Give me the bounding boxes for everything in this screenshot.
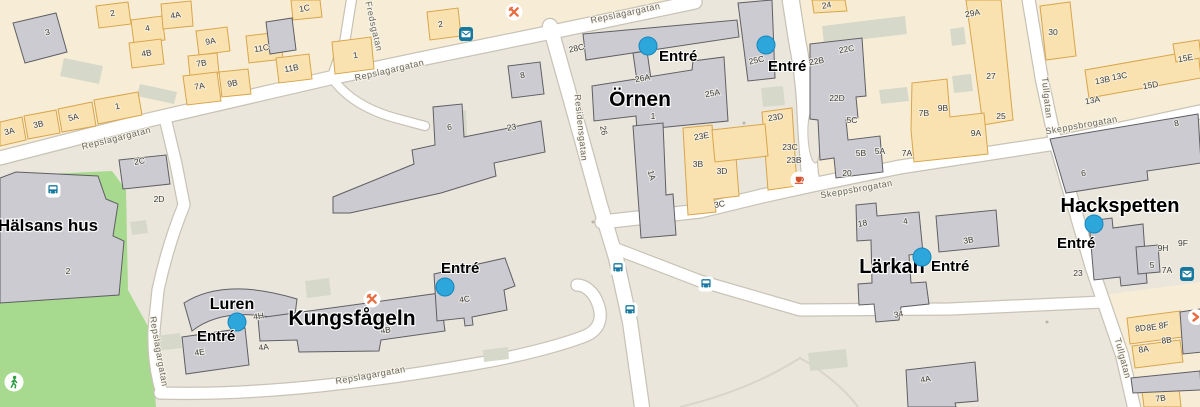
map-canvas[interactable]: RepslagargatanRepslagargatanRepslagargat…	[0, 0, 1200, 407]
building-number: 25	[996, 111, 1006, 121]
building-number: 3B	[693, 159, 704, 169]
building-number: 7A	[902, 148, 913, 158]
building-number: 2D	[154, 194, 165, 204]
building-number: 9H	[1158, 243, 1169, 253]
entrance-dot-icon[interactable]	[1085, 215, 1103, 233]
bus-stop-icon[interactable]	[611, 261, 626, 276]
building-number: 8D	[1135, 322, 1147, 333]
entrance-label: Entré	[1057, 235, 1095, 252]
building-number: 1	[651, 111, 656, 121]
building-number: 4A	[169, 9, 181, 21]
building-number: 8F	[1158, 319, 1169, 330]
restaurant-icon[interactable]	[364, 291, 381, 308]
building-number: 3D	[717, 166, 728, 176]
building-number: 4H	[253, 310, 265, 321]
building-number: 24	[821, 0, 832, 11]
building-number: 23C	[782, 142, 798, 152]
restaurant-icon[interactable]	[506, 4, 523, 21]
building-number: 9A	[971, 128, 982, 138]
mail-icon[interactable]	[1180, 267, 1194, 281]
building-number: 7A	[1162, 265, 1173, 275]
building-number: 7B	[195, 57, 207, 69]
building-number: 4A	[919, 373, 931, 385]
building-number: 1C	[298, 2, 310, 14]
entrance-label: Entré	[768, 58, 806, 75]
bus-stop-icon[interactable]	[699, 277, 714, 292]
building-number: 7B	[1155, 392, 1167, 403]
entrance-dot-icon[interactable]	[757, 36, 775, 54]
building-number: 3B	[962, 234, 974, 246]
building-number: 9B	[226, 77, 238, 89]
quarter-label: Hackspetten	[1061, 195, 1180, 217]
building-number: 5B	[856, 148, 867, 158]
building-number: 5C	[847, 115, 858, 125]
building-number: 23	[1073, 268, 1083, 278]
entrance-dot-icon[interactable]	[436, 278, 454, 296]
building-number: 27	[986, 71, 996, 81]
building-number: 22D	[829, 93, 845, 103]
building-number: 34	[893, 308, 904, 320]
building-number: 4A	[258, 341, 270, 352]
building-number: 9F	[1178, 238, 1188, 248]
quarter-label: Örnen	[609, 88, 671, 111]
building-number: 4E	[194, 346, 206, 357]
quarter-label: Kungsfågeln	[288, 307, 415, 330]
building-number: 23B	[786, 155, 801, 165]
entrance-dot-icon[interactable]	[639, 37, 657, 55]
building-number: 7A	[193, 80, 205, 92]
quarter-label: Hälsans hus	[0, 216, 98, 235]
building-number: 7B	[919, 108, 930, 118]
building-number: 18	[857, 217, 868, 229]
building-number: 5A	[875, 146, 886, 156]
entrance-label: Entré	[441, 260, 479, 277]
building-number: 8B	[1161, 334, 1173, 345]
building-number: 3C	[713, 198, 725, 210]
building-number: 30	[1048, 27, 1058, 37]
building-number: 5	[1150, 260, 1155, 270]
entrance-label: Entré	[931, 258, 969, 275]
entrance-dot-icon[interactable]	[913, 248, 931, 266]
entrance-label: Entré	[197, 328, 235, 345]
building-number: 20	[842, 168, 852, 178]
building-number: 2C	[133, 155, 145, 167]
walking-icon[interactable]	[5, 373, 24, 392]
bus-stop-icon[interactable]	[46, 183, 61, 198]
mail-icon[interactable]	[459, 27, 473, 41]
building-number: 9A	[204, 35, 216, 47]
quarter-label: Luren	[210, 296, 254, 313]
building-number: 8E	[1146, 321, 1158, 332]
building-number: 9B	[938, 103, 949, 113]
building-number: 4C	[459, 293, 471, 304]
building-number: 2	[66, 266, 71, 276]
building-number: 23	[506, 121, 517, 133]
bus-stop-icon[interactable]	[623, 303, 638, 318]
cafe-icon[interactable]	[791, 172, 808, 189]
building-number: 4B	[140, 47, 152, 59]
building-number: 8A	[1138, 343, 1150, 354]
entrance-label: Entré	[659, 48, 697, 65]
